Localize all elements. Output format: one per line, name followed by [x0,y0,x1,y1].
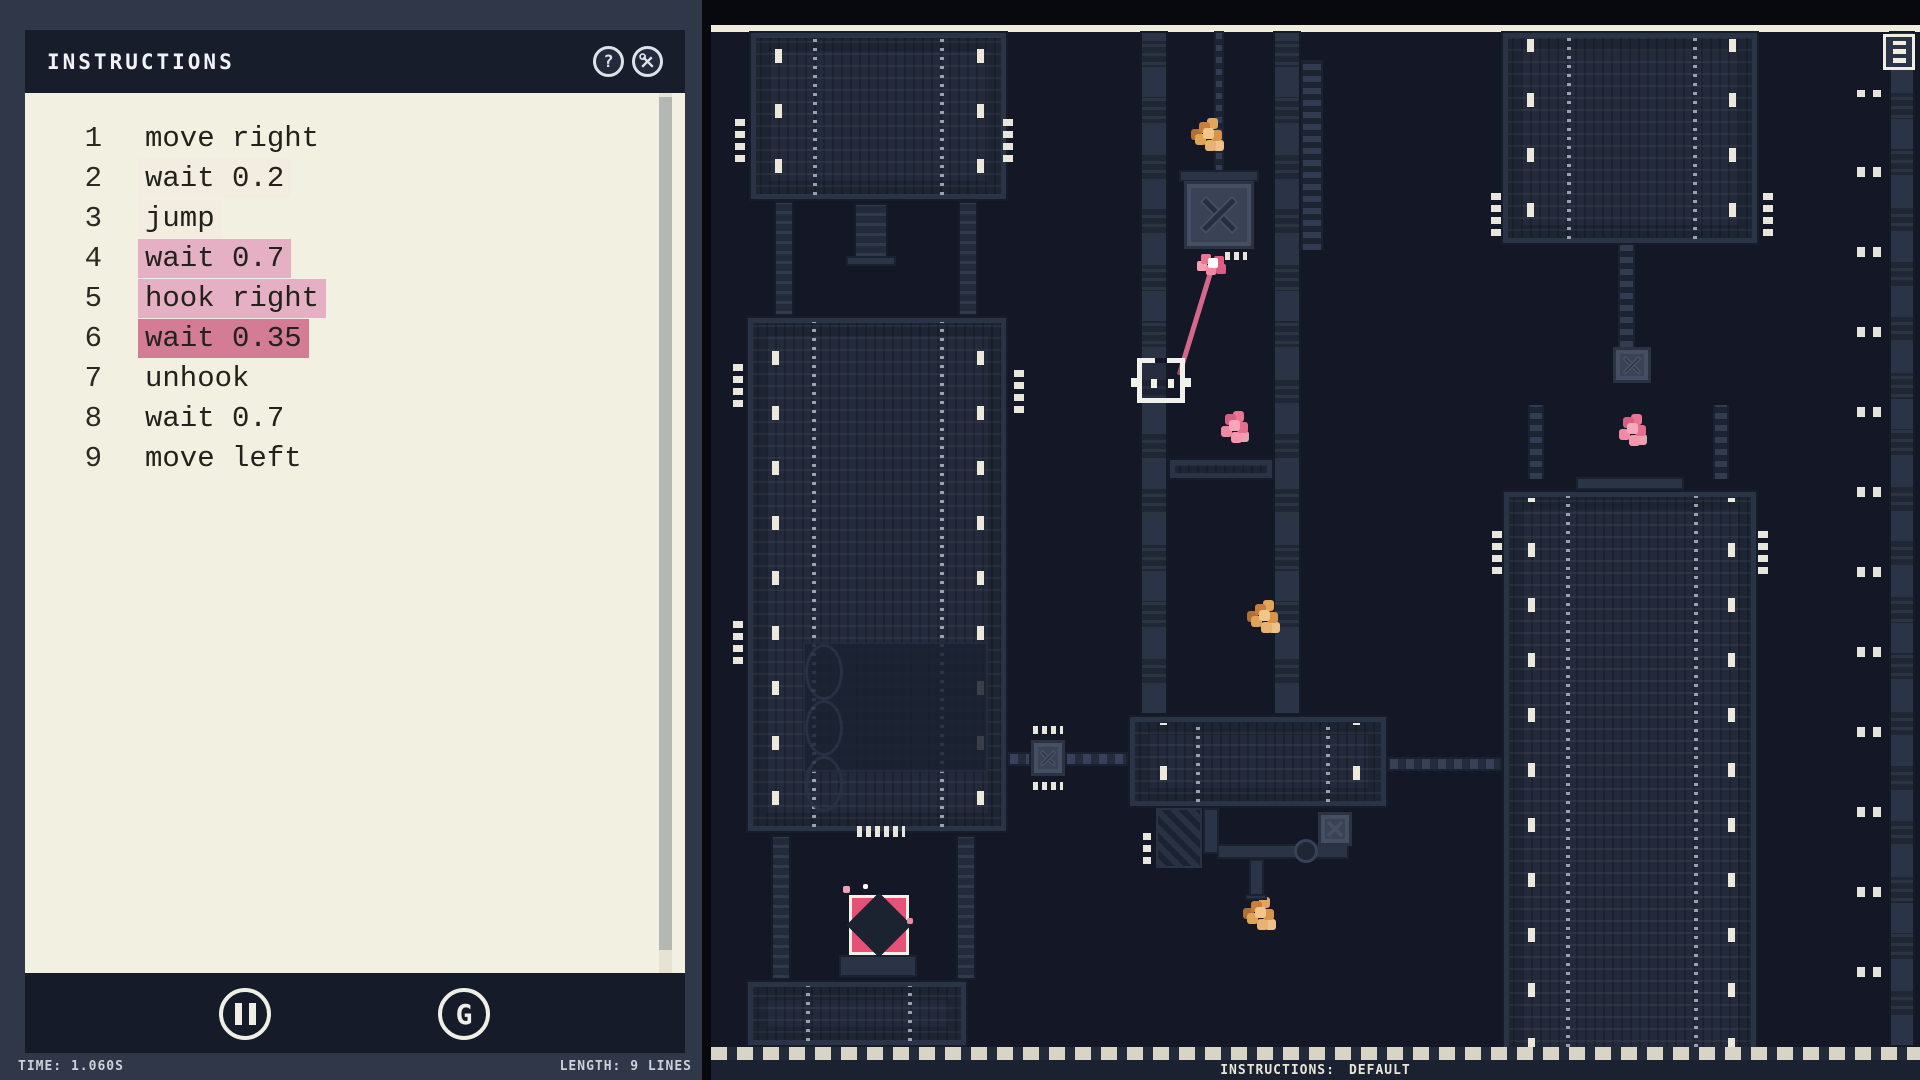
support-chain [1713,405,1729,479]
tower-detail [1528,498,1535,1072]
pipe-valve [1294,839,1318,863]
hanging-block [854,203,888,258]
line-number: 3 [25,202,102,235]
x-block-left [1031,740,1065,776]
floor-tiles [711,1047,1920,1060]
player-nub [1185,378,1191,387]
tower-top-left [749,31,1008,201]
length-readout: LENGTH: 9 LINES [560,1059,692,1074]
line-number: 9 [25,442,102,475]
line-text: move right [138,119,326,158]
tower-detail [1567,37,1571,239]
line-number: 2 [25,162,102,195]
line-number: 6 [25,322,102,355]
line-text: wait 0.7 [138,239,291,278]
line-text: wait 0.35 [138,319,309,358]
time-readout: TIME: 1.060S [18,1059,124,1074]
chain-leg [956,835,976,980]
hanging-chain [1618,245,1635,347]
help-glyph: ? [603,52,613,72]
code-editor[interactable]: 1 move right 2 wait 0.2 3 jump 4 wait 0.… [25,93,685,973]
hatch-block [1156,808,1202,868]
tower-detail [1694,496,1698,1074]
line-number: 1 [25,122,102,155]
pause-icon [235,1003,256,1025]
reel-crate-icon [1883,34,1915,70]
code-line[interactable]: 6 wait 0.35 [25,318,685,358]
block-arrows [1033,726,1063,734]
instructions-value: DEFAULT [1349,1063,1411,1078]
tower-detail [806,986,810,1041]
edge-arrow-marks [1857,90,1865,1047]
edge-chain-right [1889,31,1915,1047]
machine-center [1128,715,1388,808]
help-icon[interactable]: ? [593,46,624,77]
crate-chain [1214,31,1224,171]
game-status-bar: INSTRUCTIONS: DEFAULT [711,1060,1920,1080]
tower-bottom-left [746,980,968,1047]
scrollbar-thumb[interactable] [659,97,672,950]
chain-leg [774,201,794,316]
code-line[interactable]: 9 move left [25,438,685,478]
side-arrows [1758,528,1768,574]
editor-panel: INSTRUCTIONS ? 1 move right 2 wait 0.2 3… [0,0,710,1080]
chain-horizontal [1065,752,1128,766]
chain-horizontal [1008,752,1031,766]
chain-leg [771,835,791,980]
header-icons: ? [593,30,663,93]
line-text: wait 0.2 [138,159,291,198]
code-lines: 1 move right 2 wait 0.2 3 jump 4 wait 0.… [25,118,685,478]
tower-bottom-right [1502,490,1758,1080]
pause-button[interactable] [219,988,271,1040]
side-arrows [1492,528,1502,574]
chain-horizontal [1388,757,1502,771]
scrollbar-track[interactable] [659,93,672,973]
x-block-right [1318,812,1352,846]
side-arrows [1003,116,1013,162]
pillar-right [1273,31,1301,715]
x-crate [1184,181,1254,249]
line-text: unhook [138,359,256,398]
tower-detail [1566,496,1570,1074]
line-number: 4 [25,242,102,275]
restart-icon: G [456,998,473,1031]
tower-cap [1576,477,1684,490]
tower-detail [1527,39,1534,237]
player-nub [1131,378,1137,387]
line-text: jump [138,199,222,238]
block-arrows [1033,782,1063,790]
line-text: move left [138,439,309,478]
tower-detail [940,37,944,195]
editor-header: INSTRUCTIONS ? [25,30,685,93]
player-character [1137,358,1185,403]
platform-center [1168,458,1274,480]
code-line[interactable]: 5 hook right [25,278,685,318]
side-arrows [735,116,745,162]
x-block-hanging [1613,347,1651,383]
code-line[interactable]: 7 unhook [25,358,685,398]
tower-detail [775,39,782,193]
particle-burst-pink [1229,420,1240,431]
block-foot [846,256,896,266]
pipe-cap [1245,894,1267,900]
gem-spark [863,884,868,889]
panel-separator [702,0,711,1080]
tower-detail [1729,39,1736,237]
zipper-column [1301,60,1323,250]
coil-emblem [803,642,988,772]
code-line[interactable]: 2 wait 0.2 [25,158,685,198]
editor-status-bar: TIME: 1.060S LENGTH: 9 LINES [0,1053,710,1080]
code-line[interactable]: 1 move right [25,118,685,158]
tower-detail [813,37,817,195]
bottom-arrows [857,826,905,837]
gem-spark [843,886,850,893]
line-text: wait 0.7 [138,399,291,438]
tower-detail [1353,723,1360,800]
hook-anchor [1208,258,1218,268]
side-arrows [733,361,743,407]
side-arrows [1491,190,1501,236]
tower-top-right [1501,31,1759,245]
transport-bar: G [25,973,685,1053]
tools-icon[interactable] [632,46,663,77]
tower-mid-left [746,316,1008,833]
side-arrows [1763,190,1773,236]
support-chain [1528,405,1544,479]
particle-burst-orange [1255,907,1266,918]
particle-burst-orange [1259,610,1270,621]
tower-detail [772,324,779,825]
particle-burst-orange [1203,128,1214,139]
line-text: hook right [138,279,326,318]
ceiling-void [711,0,1920,25]
pipe-horizontal [1217,844,1349,859]
tower-detail [1693,37,1697,239]
panel-title: INSTRUCTIONS [47,50,235,74]
particle-burst-pink [1627,423,1638,434]
instructions-label: INSTRUCTIONS: [1220,1063,1335,1078]
code-line[interactable]: 4 wait 0.7 [25,238,685,278]
anchor-marks [1225,252,1247,260]
tower-detail [1196,721,1200,802]
restart-button[interactable]: G [438,988,490,1040]
side-arrows [733,618,743,664]
code-line[interactable]: 8 wait 0.7 [25,398,685,438]
tower-detail [1728,498,1735,1072]
side-arrows [1014,367,1024,413]
game-viewport: INSTRUCTIONS: DEFAULT [711,0,1920,1080]
tower-detail [1160,723,1167,800]
gem-box [849,895,909,955]
tower-detail [1326,721,1330,802]
edge-arrow-marks [1873,90,1881,1047]
tower-detail [908,986,912,1041]
code-line[interactable]: 3 jump [25,198,685,238]
side-arrows [1143,828,1151,864]
line-number: 8 [25,402,102,435]
tower-detail [977,39,984,193]
line-number: 5 [25,282,102,315]
pipe-down [1249,859,1264,897]
gem-spark [907,918,913,924]
gem-pedestal [839,955,917,977]
chain-leg [958,201,978,316]
wrench-glyph [639,53,656,70]
line-number: 7 [25,362,102,395]
